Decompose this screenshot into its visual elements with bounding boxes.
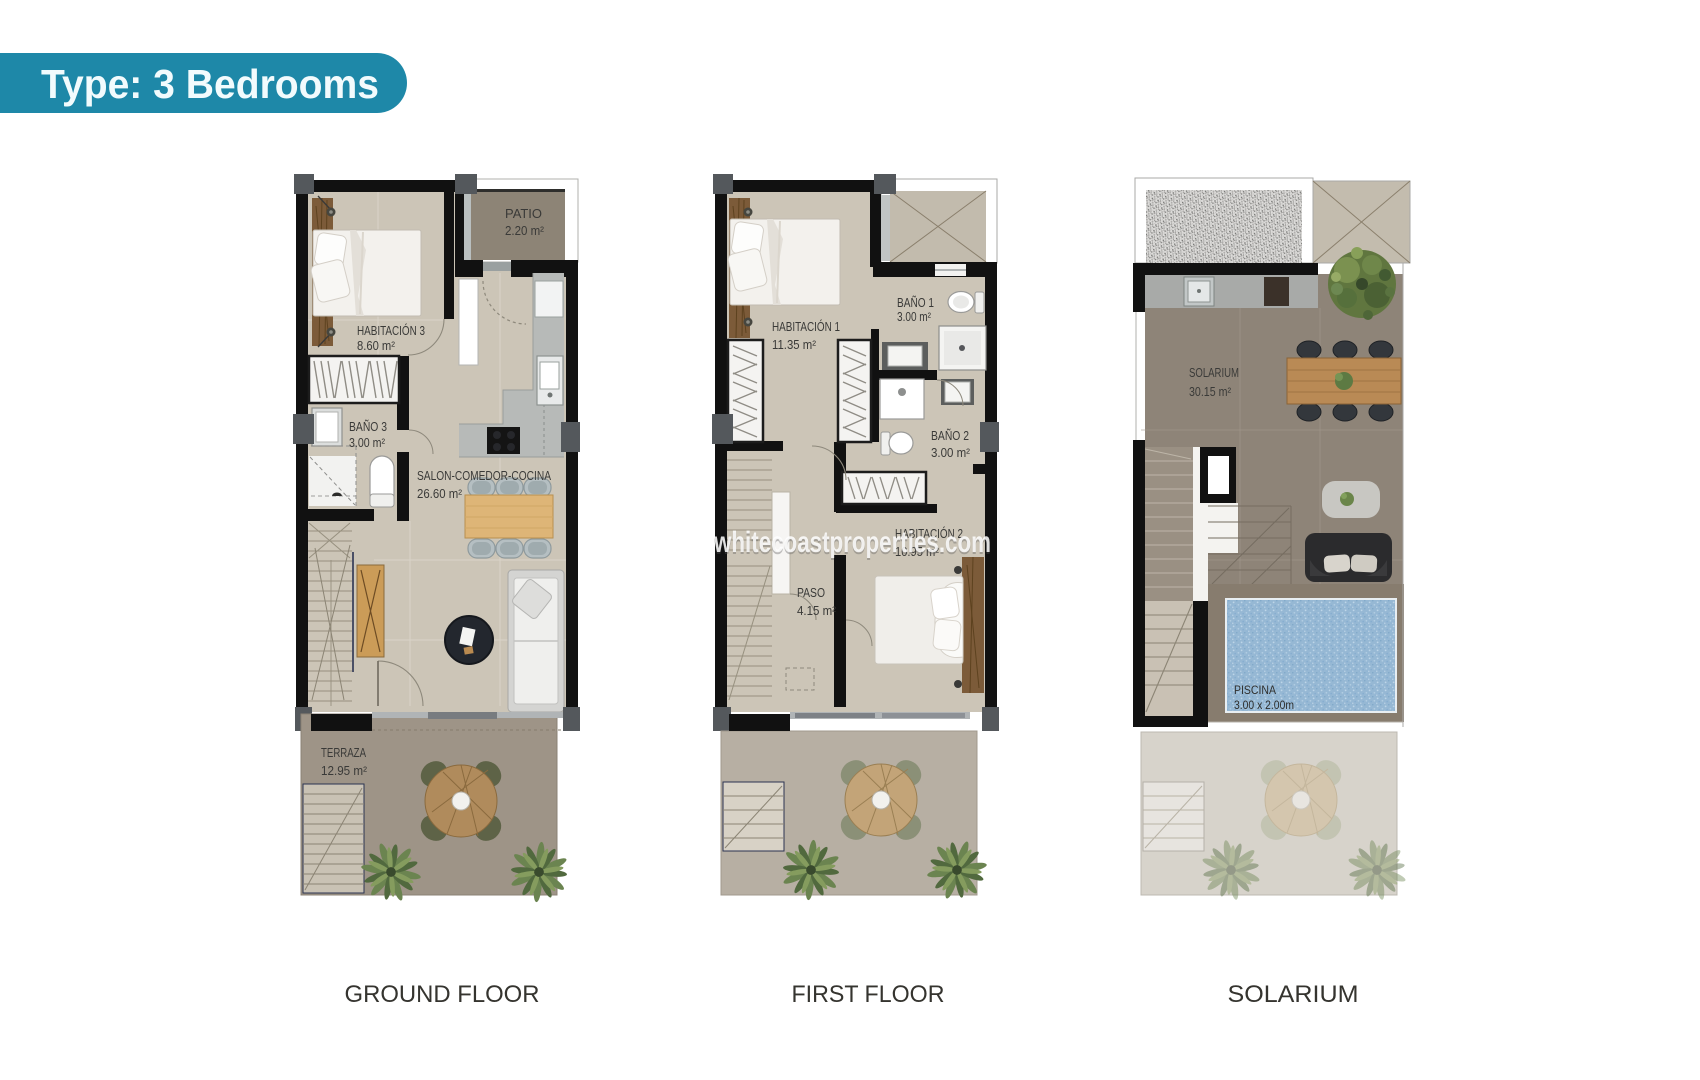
svg-text:12.95 m²: 12.95 m² (321, 763, 368, 778)
svg-text:BAÑO 3: BAÑO 3 (349, 419, 387, 434)
svg-text:GROUND FLOOR: GROUND FLOOR (345, 981, 540, 1008)
svg-text:SOLARIUM: SOLARIUM (1228, 981, 1359, 1008)
svg-text:26.60 m²: 26.60 m² (417, 486, 463, 501)
svg-text:2.20 m²: 2.20 m² (505, 223, 545, 238)
svg-text:HABITACIÓN 3: HABITACIÓN 3 (357, 323, 425, 338)
svg-text:3.00 m²: 3.00 m² (349, 435, 386, 450)
svg-text:30.15 m²: 30.15 m² (1189, 384, 1232, 399)
svg-text:4.15 m²: 4.15 m² (797, 603, 837, 618)
svg-text:3.00 x 2.00m: 3.00 x 2.00m (1234, 698, 1294, 712)
svg-text:SOLARIUM: SOLARIUM (1189, 365, 1239, 380)
svg-text:3.00 m²: 3.00 m² (897, 309, 932, 324)
svg-text:BAÑO 1: BAÑO 1 (897, 295, 934, 310)
svg-text:PASO: PASO (797, 585, 825, 600)
svg-text:PISCINA: PISCINA (1234, 683, 1276, 697)
svg-text:Type: 3 Bedrooms: Type: 3 Bedrooms (41, 61, 379, 107)
svg-text:BAÑO 2: BAÑO 2 (931, 428, 969, 443)
svg-text:whitecoastproperties.com: whitecoastproperties.com (713, 526, 991, 559)
svg-text:11.35 m²: 11.35 m² (772, 337, 817, 352)
svg-text:SALON-COMEDOR-COCINA: SALON-COMEDOR-COCINA (417, 468, 551, 483)
svg-text:3.00 m²: 3.00 m² (931, 445, 971, 460)
svg-text:8.60 m²: 8.60 m² (357, 338, 396, 353)
svg-text:PATIO: PATIO (505, 206, 542, 221)
svg-text:FIRST FLOOR: FIRST FLOOR (792, 981, 945, 1008)
svg-text:HABITACIÓN 1: HABITACIÓN 1 (772, 319, 840, 334)
svg-text:TERRAZA: TERRAZA (321, 745, 366, 760)
